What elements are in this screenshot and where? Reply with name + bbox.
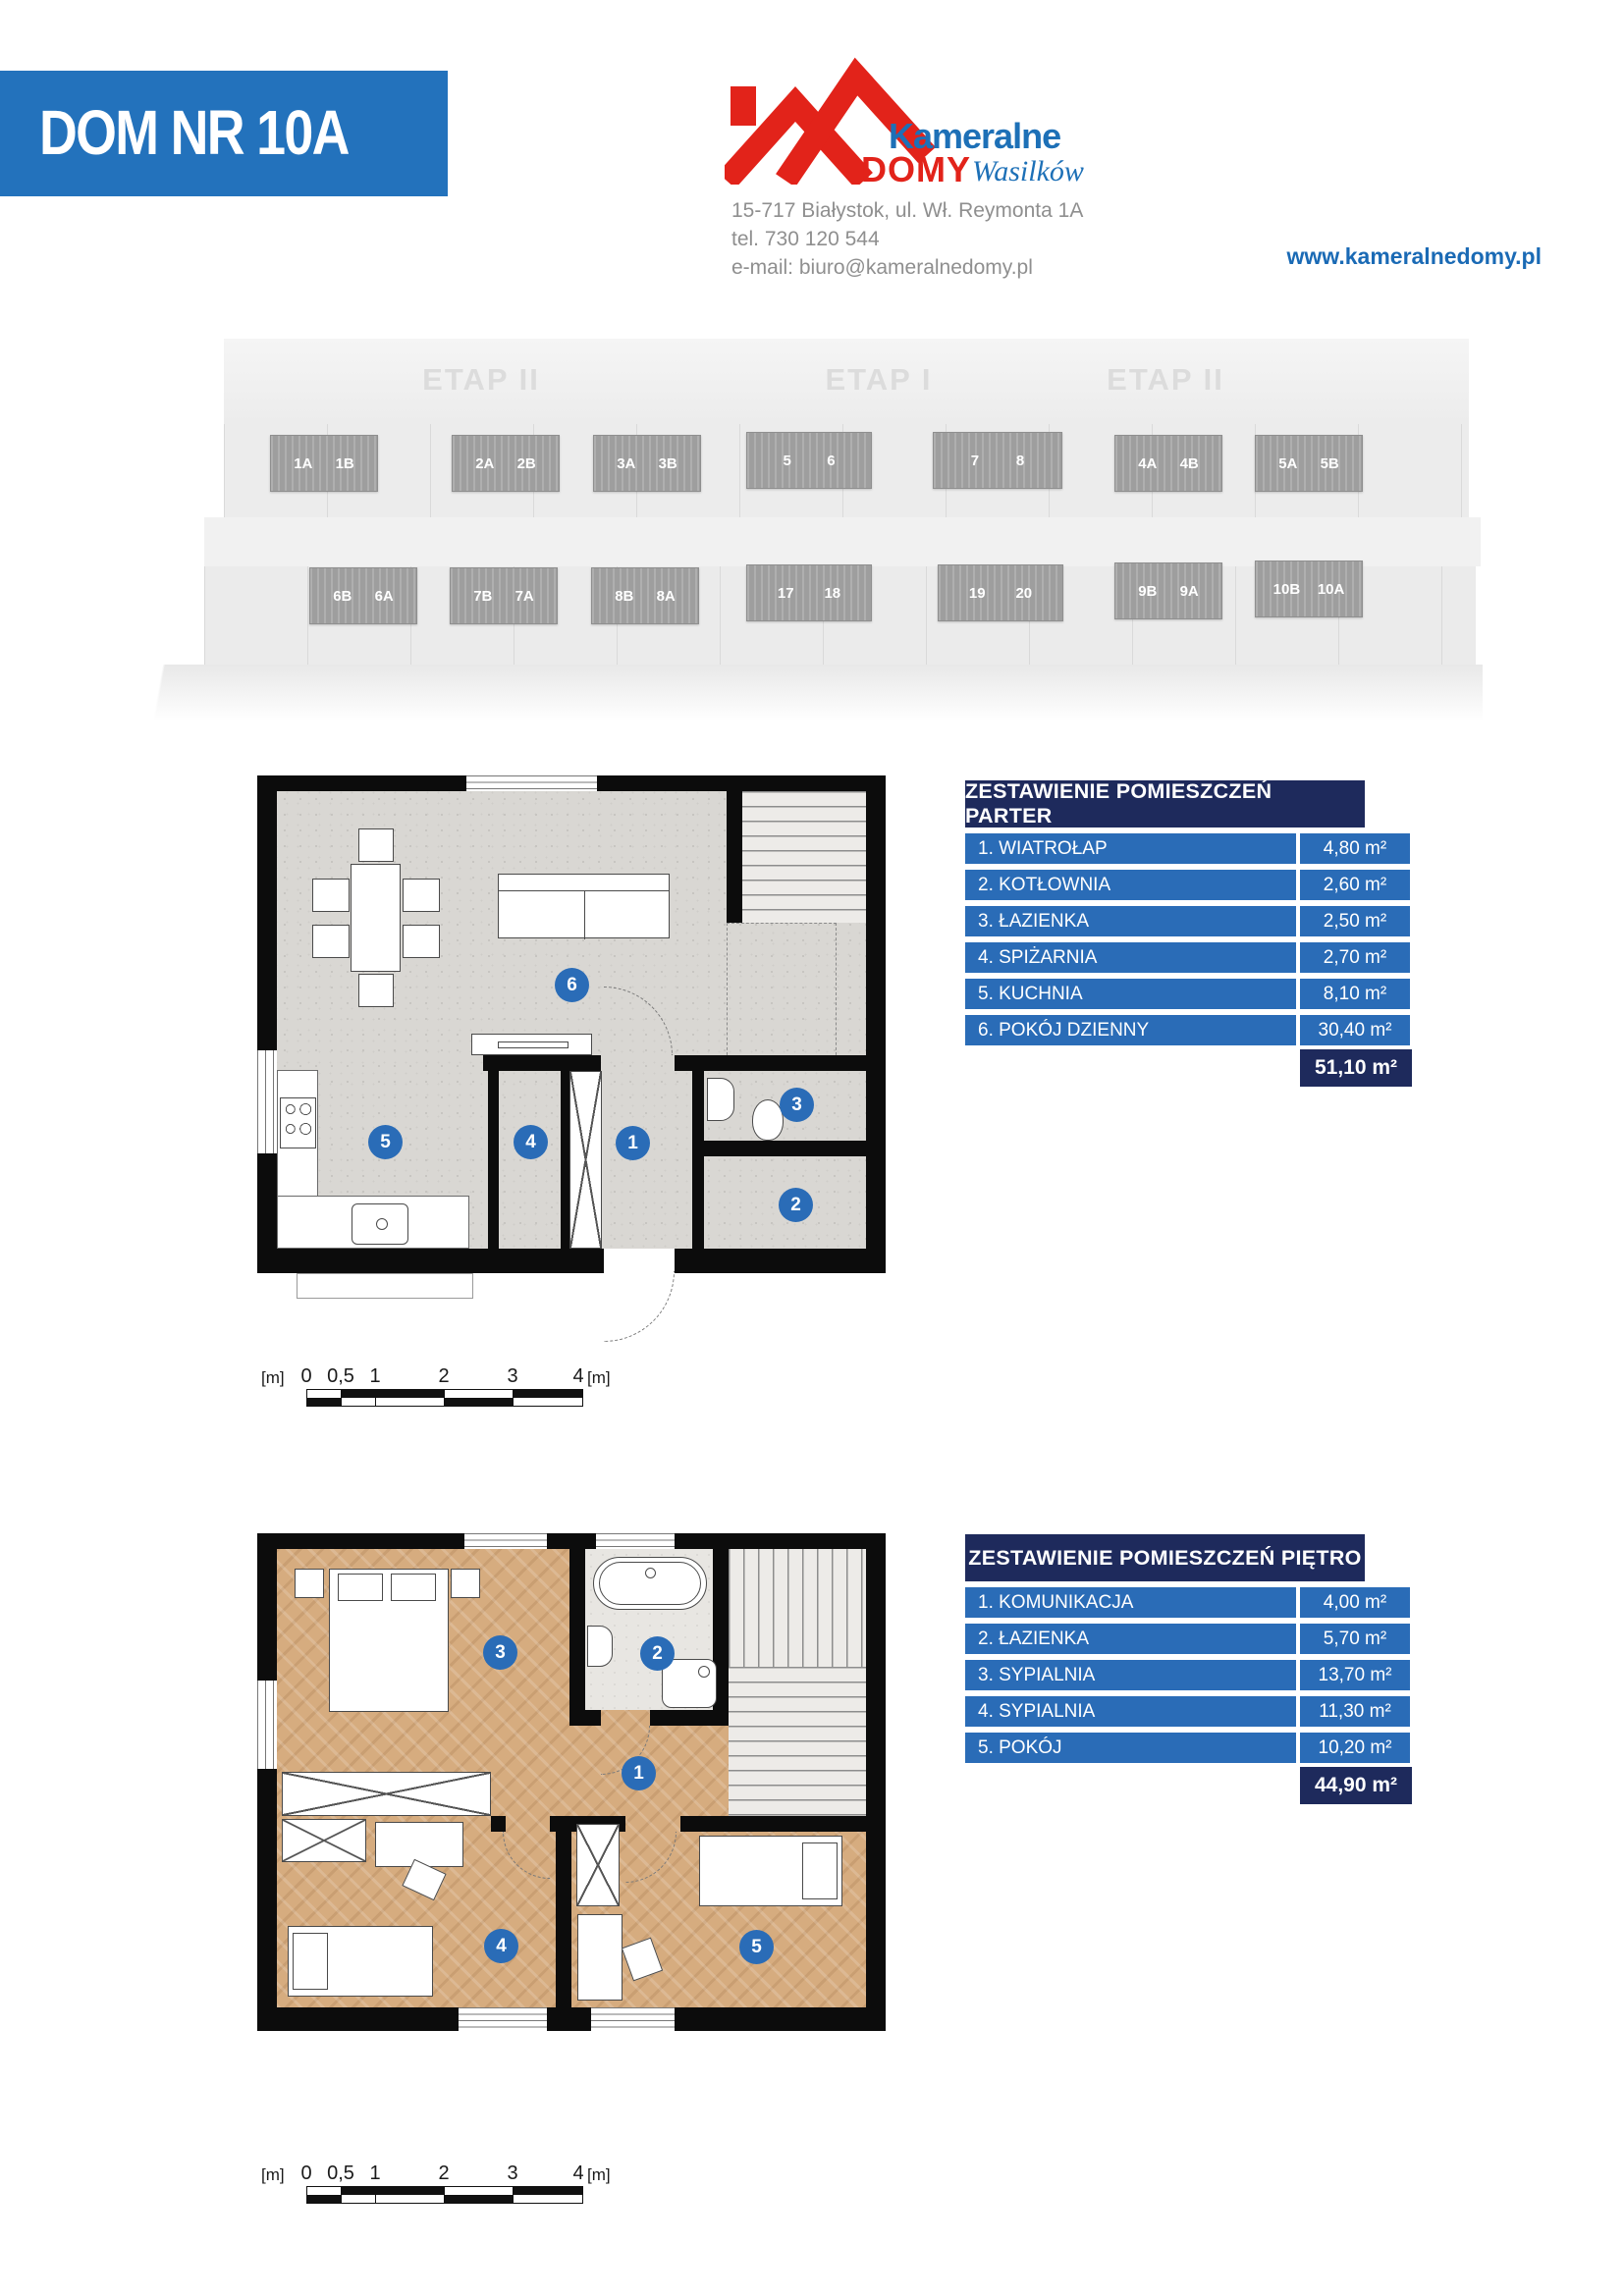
shower xyxy=(662,1659,717,1708)
scale-tick: 0,5 xyxy=(327,1365,354,1388)
table-row: 5. POKÓJ10,20 m² xyxy=(965,1733,1412,1763)
window-left xyxy=(257,1681,277,1769)
room-marker-label: 2 xyxy=(790,1195,801,1216)
bathtub-drain xyxy=(645,1568,656,1578)
scale-tick: 3 xyxy=(507,2163,517,2185)
room-area: 4,00 m² xyxy=(1300,1587,1410,1618)
wall-hall-right xyxy=(692,1071,704,1249)
room-label: 6. POKÓJ DZIENNY xyxy=(965,1015,1296,1045)
chair xyxy=(403,925,440,958)
table-row: 4. SYPIALNIA11,30 m² xyxy=(965,1696,1412,1727)
room-marker-label: 1 xyxy=(633,1763,644,1785)
scale-tick: 4 xyxy=(572,1365,583,1388)
house-label: 7B xyxy=(473,588,492,605)
staircase-lower xyxy=(729,1667,866,1816)
address-line-1: 15-717 Białystok, ul. Wł. Reymonta 1A xyxy=(731,196,1083,225)
table-pietro-total: 44,90 m² xyxy=(1300,1767,1412,1804)
desk xyxy=(577,1914,623,2001)
house-label: 8B xyxy=(615,588,633,605)
porch-outline xyxy=(297,1273,473,1299)
house-label: 10B xyxy=(1273,581,1301,598)
single-bed xyxy=(699,1836,842,1906)
entry-door-swing xyxy=(604,1271,675,1342)
page: DOM NR 10A Kameralne DOMY Wasilków 15-71… xyxy=(0,0,1624,2296)
scale-tick: 0,5 xyxy=(327,2163,354,2185)
wall-mid xyxy=(680,1816,866,1832)
sink-drain xyxy=(376,1218,388,1230)
house-block-19-20: 1920 xyxy=(938,564,1063,621)
house-label: 1B xyxy=(336,455,354,472)
room-area: 13,70 m² xyxy=(1300,1660,1410,1690)
scale-bar xyxy=(306,2186,583,2204)
room-area: 2,60 m² xyxy=(1300,870,1410,900)
scale-tick: 1 xyxy=(369,2163,380,2185)
house-label: 8 xyxy=(1016,453,1024,469)
chair xyxy=(312,925,350,958)
room-area: 4,80 m² xyxy=(1300,833,1410,864)
house-block-5-6: 56 xyxy=(746,432,872,489)
room-marker-2: 2 xyxy=(779,1188,813,1222)
house-label: 3B xyxy=(659,455,677,472)
room-area: 30,40 m² xyxy=(1300,1015,1410,1045)
stove-icon xyxy=(280,1097,316,1148)
house-label: 2A xyxy=(475,455,494,472)
staircase-dashed-outline xyxy=(727,923,837,1060)
room-marker-4: 4 xyxy=(484,1929,518,1963)
wall-right xyxy=(866,775,886,1273)
title-banner: DOM NR 10A xyxy=(0,71,448,196)
table-pietro: ZESTAWIENIE POMIESZCZEŃ PIĘTRO 1. KOMUNI… xyxy=(965,1534,1412,1804)
wall-room4-room5 xyxy=(556,1816,571,2007)
window-top xyxy=(466,775,597,791)
scale-unit-right: [m] xyxy=(587,1368,611,1388)
room-area: 10,20 m² xyxy=(1300,1733,1410,1763)
house-label: 6A xyxy=(375,588,394,605)
room-marker-1: 1 xyxy=(616,1126,650,1160)
scale-segment xyxy=(376,2187,445,2203)
staircase-upper xyxy=(729,1549,866,1667)
wardrobe xyxy=(576,1824,620,1906)
room-marker-label: 4 xyxy=(496,1936,507,1957)
wall-bath-boiler xyxy=(704,1141,866,1156)
scale-tick: 0 xyxy=(300,2163,311,2185)
room-area: 8,10 m² xyxy=(1300,979,1410,1009)
bathroom-sink xyxy=(587,1626,613,1667)
room-marker-label: 5 xyxy=(380,1132,391,1153)
table-pietro-title: ZESTAWIENIE POMIESZCZEŃ PIĘTRO xyxy=(965,1534,1365,1581)
house-block-17-18: 1718 xyxy=(746,564,872,621)
window-top-1 xyxy=(464,1533,547,1549)
shower-drain xyxy=(698,1666,710,1678)
table-row: 3. ŁAZIENKA2,50 m² xyxy=(965,906,1412,936)
scale-segment xyxy=(307,2187,342,2203)
house-block-4: 4A4B xyxy=(1114,435,1222,492)
wall-pantry-left xyxy=(488,1071,499,1249)
window-bottom-2 xyxy=(591,2007,675,2031)
room-label: 4. SYPIALNIA xyxy=(965,1696,1296,1727)
wall-bedroom-bath xyxy=(569,1549,585,1710)
logo-word-domy: DOMY xyxy=(861,149,971,190)
room-marker-2: 2 xyxy=(640,1636,675,1671)
staircase xyxy=(742,791,866,923)
house-label: 17 xyxy=(778,585,794,602)
house-block-5ab: 5A5B xyxy=(1255,435,1363,492)
bathtub xyxy=(593,1557,707,1610)
wall-bath-bottom xyxy=(569,1710,601,1726)
pillow xyxy=(391,1574,436,1601)
room-area: 2,50 m² xyxy=(1300,906,1410,936)
table-row: 2. ŁAZIENKA5,70 m² xyxy=(965,1624,1412,1654)
scale-unit-left: [m] xyxy=(261,2165,285,2185)
room-marker-label: 3 xyxy=(495,1642,506,1664)
room-label: 3. SYPIALNIA xyxy=(965,1660,1296,1690)
house-label: 4B xyxy=(1180,455,1199,472)
tv-cabinet xyxy=(471,1034,592,1055)
company-address: 15-717 Białystok, ul. Wł. Reymonta 1A te… xyxy=(731,196,1083,282)
scale-segment xyxy=(445,2187,514,2203)
address-line-3: e-mail: biuro@kameralnedomy.pl xyxy=(731,253,1083,282)
table-parter-total: 51,10 m² xyxy=(1300,1049,1412,1087)
wall-stairs xyxy=(727,791,742,923)
house-label: 6 xyxy=(827,453,835,469)
chair xyxy=(358,974,394,1007)
house-label: 19 xyxy=(969,585,986,602)
house-label: 9B xyxy=(1138,583,1157,600)
room-marker-label: 3 xyxy=(791,1095,802,1116)
table-parter: ZESTAWIENIE POMIESZCZEŃ PARTER 1. WIATRO… xyxy=(965,780,1412,1087)
house-block-9: 9B9A xyxy=(1114,562,1222,619)
wardrobe xyxy=(569,1071,602,1249)
room-marker-label: 5 xyxy=(751,1937,762,1958)
nightstand xyxy=(451,1569,480,1598)
chair xyxy=(358,828,394,862)
website-link[interactable]: www.kameralnedomy.pl xyxy=(1267,243,1542,270)
house-block-1: 1A1B xyxy=(270,435,378,492)
wall-bottom xyxy=(257,2007,886,2031)
house-label: 18 xyxy=(824,585,840,602)
house-label: 10A xyxy=(1318,581,1345,598)
scale-segment xyxy=(514,1390,582,1406)
room-marker-1: 1 xyxy=(622,1756,656,1790)
desk xyxy=(375,1822,463,1867)
room-label: 4. SPIŻARNIA xyxy=(965,942,1296,973)
house-label: 7A xyxy=(515,588,534,605)
wall-bottom xyxy=(257,1249,886,1273)
table-row: 1. WIATROŁAP4,80 m² xyxy=(965,833,1412,864)
page-title: DOM NR 10A xyxy=(39,96,349,169)
scale-segment xyxy=(342,2187,376,2203)
sofa xyxy=(498,874,670,938)
house-label: 7 xyxy=(971,453,979,469)
room-label: 5. KUCHNIA xyxy=(965,979,1296,1009)
etap-label-left: ETAP II xyxy=(422,362,540,398)
wall-right xyxy=(866,1533,886,2031)
wardrobe xyxy=(282,1819,366,1862)
scale-segment xyxy=(445,1390,514,1406)
sofa-seat-line xyxy=(584,890,585,939)
wardrobe-long xyxy=(282,1772,491,1816)
double-bed xyxy=(329,1569,449,1712)
window-top-2 xyxy=(596,1533,675,1549)
logo-word-wasilkow: Wasilków xyxy=(972,155,1084,188)
house-block-10: 10B10A xyxy=(1255,561,1363,617)
wall-left xyxy=(257,775,277,1273)
site-plan-fade xyxy=(147,665,1483,721)
house-block-8: 8B8A xyxy=(591,567,699,624)
room-marker-label: 1 xyxy=(627,1133,638,1154)
wall-top xyxy=(257,1533,886,1549)
scale-tick: 2 xyxy=(438,1365,449,1388)
table-row: 1. KOMUNIKACJA4,00 m² xyxy=(965,1587,1412,1618)
room-area: 5,70 m² xyxy=(1300,1624,1410,1654)
wall-interior xyxy=(483,1055,601,1071)
scale-tick: 2 xyxy=(438,2163,449,2185)
house-label: 6B xyxy=(333,588,352,605)
house-label: 2B xyxy=(517,455,536,472)
wall-mid xyxy=(491,1816,506,1832)
room-marker-label: 2 xyxy=(652,1643,663,1665)
room-label: 1. WIATROŁAP xyxy=(965,833,1296,864)
table-row: 2. KOTŁOWNIA2,60 m² xyxy=(965,870,1412,900)
address-line-2: tel. 730 120 544 xyxy=(731,225,1083,253)
scale-tick: 1 xyxy=(369,1365,380,1388)
etap-label-right: ETAP II xyxy=(1107,362,1224,398)
kitchen-sink xyxy=(352,1203,408,1245)
house-block-3: 3A3B xyxy=(593,435,701,492)
room-area: 11,30 m² xyxy=(1300,1696,1410,1727)
room-label: 3. ŁAZIENKA xyxy=(965,906,1296,936)
scale-segment xyxy=(376,1390,445,1406)
house-label: 5 xyxy=(783,453,790,469)
etap-label-center: ETAP I xyxy=(825,362,932,398)
scale-bar xyxy=(306,1389,583,1407)
dining-table xyxy=(351,864,401,972)
pillow xyxy=(802,1842,838,1899)
chair xyxy=(312,879,350,912)
room-marker-5: 5 xyxy=(739,1930,774,1964)
house-label: 9A xyxy=(1180,583,1199,600)
tv xyxy=(498,1041,568,1048)
house-block-6: 6B6A xyxy=(309,567,417,624)
table-parter-title: ZESTAWIENIE POMIESZCZEŃ PARTER xyxy=(965,780,1365,828)
wall-bath-bottom xyxy=(650,1710,729,1726)
scale-unit-right: [m] xyxy=(587,2165,611,2185)
house-block-2: 2A2B xyxy=(452,435,560,492)
table-row: 4. SPIŻARNIA2,70 m² xyxy=(965,942,1412,973)
room-marker-label: 6 xyxy=(567,975,577,996)
pillow xyxy=(293,1933,328,1990)
room-marker-label: 4 xyxy=(525,1132,536,1153)
scale-tick: 0 xyxy=(300,1365,311,1388)
house-label: 5A xyxy=(1278,455,1297,472)
room-area: 2,70 m² xyxy=(1300,942,1410,973)
house-label: 1A xyxy=(294,455,312,472)
house-label: 8A xyxy=(657,588,676,605)
house-label: 4A xyxy=(1138,455,1157,472)
house-label: 20 xyxy=(1015,585,1032,602)
nightstand xyxy=(295,1569,324,1598)
room-label: 2. ŁAZIENKA xyxy=(965,1624,1296,1654)
room-marker-5: 5 xyxy=(368,1125,403,1159)
table-row: 3. SYPIALNIA13,70 m² xyxy=(965,1660,1412,1690)
window-left xyxy=(257,1050,277,1153)
scale-segment xyxy=(307,1390,342,1406)
room-marker-4: 4 xyxy=(514,1125,548,1159)
house-label: 5B xyxy=(1321,455,1339,472)
single-bed xyxy=(288,1926,433,1997)
window-bottom-1 xyxy=(459,2007,547,2031)
chair xyxy=(403,879,440,912)
scale-tick: 3 xyxy=(507,1365,517,1388)
table-row: 5. KUCHNIA8,10 m² xyxy=(965,979,1412,1009)
wall-left xyxy=(257,1533,277,2031)
room-marker-6: 6 xyxy=(555,968,589,1002)
room-label: 2. KOTŁOWNIA xyxy=(965,870,1296,900)
room-marker-3: 3 xyxy=(483,1635,517,1670)
room-label: 1. KOMUNIKACJA xyxy=(965,1587,1296,1618)
room-label: 5. POKÓJ xyxy=(965,1733,1296,1763)
entry-door-opening xyxy=(604,1249,675,1273)
scale-segment xyxy=(514,2187,582,2203)
scale-segment xyxy=(342,1390,376,1406)
house-block-7: 7B7A xyxy=(450,567,558,624)
scale-tick: 4 xyxy=(572,2163,583,2185)
wall-interior xyxy=(675,1055,868,1071)
table-row: 6. POKÓJ DZIENNY30,40 m² xyxy=(965,1015,1412,1045)
site-plan: ETAP II ETAP I ETAP II 1A1B 2A2B 3A3B 56… xyxy=(147,339,1483,721)
bathroom-sink xyxy=(707,1078,734,1121)
room-marker-3: 3 xyxy=(780,1088,814,1122)
upper-floor-plan: 3 2 1 4 5 xyxy=(257,1533,886,2034)
site-plan-road xyxy=(204,517,1481,566)
house-label: 3A xyxy=(617,455,635,472)
wall-pantry-right xyxy=(561,1071,569,1249)
scale-unit-left: [m] xyxy=(261,1368,285,1388)
house-block-7-8: 78 xyxy=(933,432,1062,489)
ground-floor-plan: 6 5 4 1 3 2 xyxy=(257,775,886,1273)
pillow xyxy=(338,1574,383,1601)
